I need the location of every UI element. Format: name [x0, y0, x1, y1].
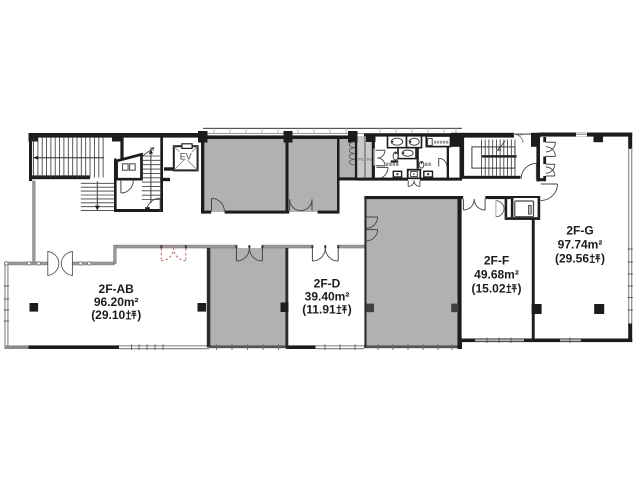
- svg-text:97.74m²: 97.74m²: [558, 238, 603, 252]
- svg-text:2F-F: 2F-F: [484, 254, 509, 268]
- svg-text:EV: EV: [180, 152, 192, 162]
- svg-text:PS: PS: [358, 157, 364, 162]
- svg-text:(29.56: (29.56: [555, 252, 589, 266]
- svg-text:): ): [348, 303, 352, 317]
- svg-text:39.40m²: 39.40m²: [305, 290, 350, 304]
- svg-text:(29.10: (29.10: [91, 308, 125, 322]
- svg-text:): ): [137, 308, 141, 322]
- svg-text:2F-D: 2F-D: [314, 277, 341, 291]
- svg-text:(11.91: (11.91: [302, 303, 336, 317]
- svg-text:49.68m²: 49.68m²: [474, 268, 519, 282]
- svg-text:2F-AB: 2F-AB: [99, 282, 135, 296]
- svg-text:): ): [518, 282, 522, 296]
- svg-text:): ): [601, 252, 605, 266]
- svg-text:96.20m²: 96.20m²: [94, 295, 139, 309]
- svg-text:PS: PS: [367, 157, 373, 162]
- svg-text:2F-G: 2F-G: [566, 224, 593, 238]
- svg-text:(15.02: (15.02: [472, 282, 506, 296]
